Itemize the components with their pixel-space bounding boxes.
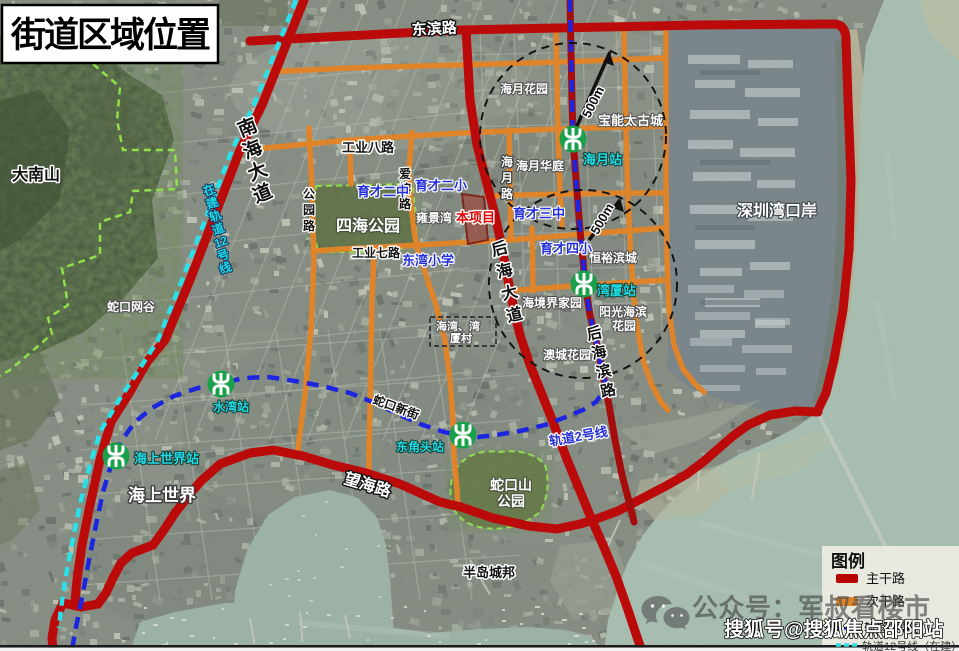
svg-text:公园: 公园: [497, 493, 525, 509]
svg-text:湾厦站: 湾厦站: [597, 283, 636, 298]
svg-text:澳城花园: 澳城花园: [543, 347, 591, 362]
svg-text:爱: 爱: [399, 166, 411, 181]
svg-text:雍景湾: 雍景湾: [416, 210, 452, 225]
svg-text:大南山: 大南山: [12, 165, 60, 184]
svg-text:图例: 图例: [831, 551, 865, 571]
svg-text:路: 路: [303, 218, 316, 233]
svg-text:月: 月: [500, 171, 513, 185]
svg-text:公: 公: [303, 187, 315, 201]
svg-text:恒裕滨城: 恒裕滨城: [589, 250, 637, 265]
svg-text:宝能太古城: 宝能太古城: [598, 113, 663, 128]
svg-text:海上世界: 海上世界: [128, 485, 196, 505]
svg-text:海月站: 海月站: [583, 152, 622, 167]
svg-text:海: 海: [501, 154, 513, 169]
svg-text:水湾站: 水湾站: [213, 399, 249, 414]
svg-text:四海公园: 四海公园: [336, 216, 400, 235]
svg-text:花园: 花园: [612, 318, 636, 333]
svg-text:阳光海滨: 阳光海滨: [599, 304, 647, 319]
svg-text:街道区域位置: 街道区域位置: [10, 16, 210, 55]
svg-text:工业七路: 工业七路: [352, 245, 401, 260]
svg-text:海境界家园: 海境界家园: [522, 295, 582, 310]
svg-text:东湾小学: 东湾小学: [402, 253, 454, 268]
svg-text:厦村: 厦村: [450, 331, 472, 345]
svg-text:育才四小: 育才四小: [540, 241, 592, 256]
svg-text:海湾、湾: 海湾、湾: [436, 319, 480, 333]
svg-text:路: 路: [501, 186, 514, 201]
svg-text:育才三中: 育才三中: [513, 206, 565, 221]
svg-text:主干路: 主干路: [866, 571, 905, 586]
svg-text:轨道12号线（在建）: 轨道12号线（在建）: [862, 639, 959, 651]
svg-text:本项目: 本项目: [456, 210, 495, 225]
svg-text:蛇口山: 蛇口山: [490, 477, 532, 493]
svg-text:蛇口网谷: 蛇口网谷: [107, 299, 156, 314]
svg-text:半岛城邦: 半岛城邦: [463, 565, 515, 580]
svg-text:搜狐号@搜狐焦点邵阳站: 搜狐号@搜狐焦点邵阳站: [724, 617, 944, 641]
svg-text:育才二中: 育才二中: [357, 184, 409, 199]
svg-text:深圳湾口岸: 深圳湾口岸: [737, 201, 817, 220]
svg-text:东滨路: 东滨路: [411, 19, 458, 39]
svg-text:海月花园: 海月花园: [500, 81, 548, 96]
svg-text:海月华庭: 海月华庭: [516, 158, 564, 173]
svg-text:工业八路: 工业八路: [342, 140, 395, 155]
svg-text:园: 园: [303, 203, 315, 217]
svg-text:海上世界站: 海上世界站: [134, 451, 199, 466]
svg-text:育才二小: 育才二小: [415, 178, 467, 193]
svg-text:东角头站: 东角头站: [396, 439, 444, 454]
